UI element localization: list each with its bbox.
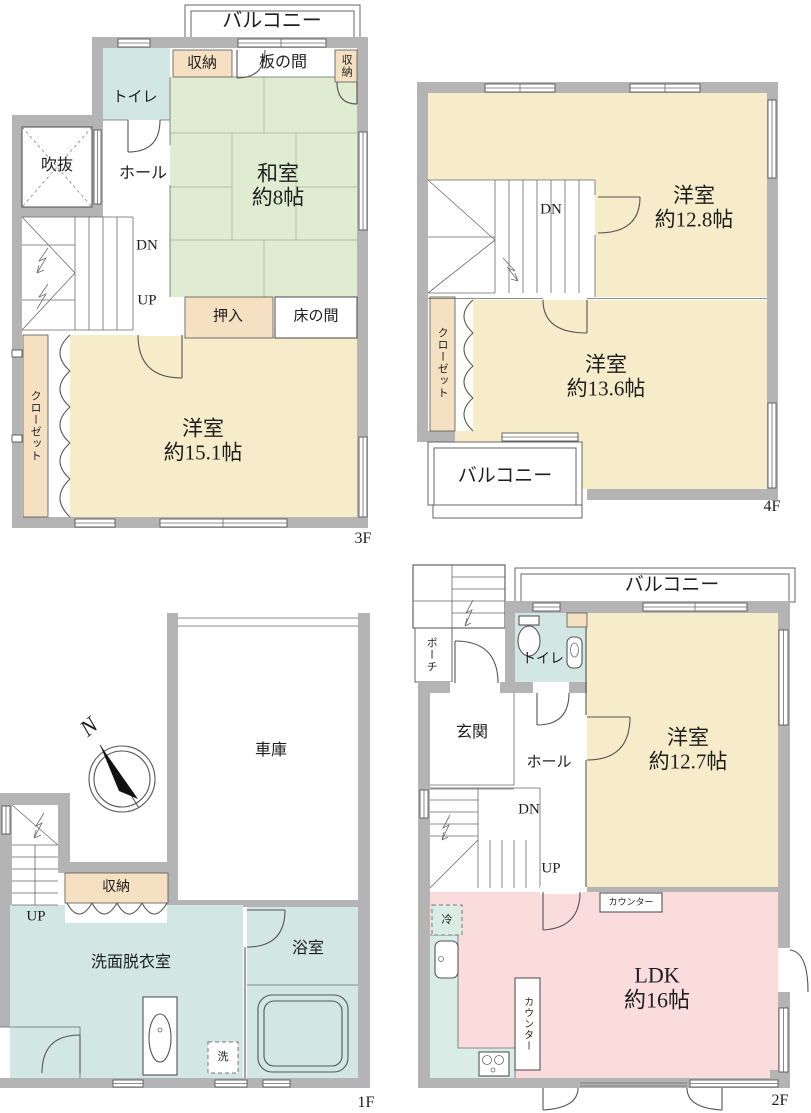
oshiire-label-3f: 押入 <box>213 309 243 326</box>
floor-label-4f: 4F <box>764 498 781 516</box>
balcony-label-4f: バルコニー <box>458 465 553 486</box>
counter-side-label-2f: カウンター <box>521 997 532 1052</box>
room2-label-4f: 洋室 約13.6帖 <box>567 353 646 400</box>
washer-label-1f: 洗 <box>218 1051 229 1063</box>
storage-top-label-3f: 収納 <box>187 56 217 73</box>
hall-label-2f: ホール <box>526 755 571 772</box>
dn-label-4f: DN <box>540 202 562 219</box>
balcony-label-3f: バルコニー <box>222 10 322 32</box>
room-label-2f: 洋室 約12.7帖 <box>649 726 728 773</box>
garage-label-1f: 車庫 <box>255 742 287 760</box>
toilet-label-2f: トイレ <box>522 652 564 668</box>
ext-stairs-2f <box>413 565 505 628</box>
storage-right-label-3f: 収納 <box>340 54 352 78</box>
itanoma-label-3f: 板の間 <box>259 54 307 72</box>
hall-label-3f: ホール <box>119 165 167 183</box>
floorplan-page: バルコニー トイレ 収納 板の間 収納 和室 約8帖 吹抜 ホール DN UP … <box>0 0 811 1113</box>
bathroom-label-1f: 浴室 <box>292 940 324 958</box>
dn-label-3f: DN <box>136 238 158 255</box>
entrance-label-2f: 玄関 <box>456 724 488 742</box>
floor-2f <box>413 565 808 1110</box>
fridge-label-2f: 冷 <box>442 914 453 926</box>
closet-label-3f: クローゼット <box>29 390 41 462</box>
ldk-label-2f: LDK 約16帖 <box>624 963 690 1012</box>
dn-label-2f: DN <box>518 802 540 819</box>
washroom-label-1f: 洗面脱衣室 <box>91 954 171 972</box>
fukinuke-label-3f: 吹抜 <box>41 157 73 175</box>
up-label-1f: UP <box>26 909 45 926</box>
counter-top-label-2f: カウンター <box>608 897 653 907</box>
floor-label-1f: 1F <box>358 1094 375 1112</box>
up-label-2f: UP <box>541 861 560 878</box>
stove-2f <box>479 1052 509 1076</box>
room-toilet-3f <box>103 48 170 120</box>
up-label-3f: UP <box>137 293 156 310</box>
floor-4f <box>417 82 778 518</box>
balcony-label-2f: バルコニー <box>625 574 720 595</box>
porch-label-2f: ポーチ <box>425 637 437 673</box>
floor-label-2f: 2F <box>772 1092 789 1110</box>
washitsu-label-3f: 和室 約8帖 <box>252 162 305 209</box>
storage-label-1f: 収納 <box>102 880 130 896</box>
toilet-label-3f: トイレ <box>112 90 157 107</box>
floor-1f <box>0 613 370 1088</box>
room1-label-4f: 洋室 約12.8帖 <box>655 184 734 231</box>
floor-label-3f: 3F <box>355 530 372 548</box>
tokonoma-label-3f: 床の間 <box>293 309 338 326</box>
closet-label-4f: クローゼット <box>436 327 448 399</box>
stairs-1f <box>12 805 58 905</box>
compass-icon <box>89 745 155 812</box>
stairs-3f <box>22 217 133 330</box>
yoshitsu-label-3f: 洋室 約15.1帖 <box>164 417 243 464</box>
